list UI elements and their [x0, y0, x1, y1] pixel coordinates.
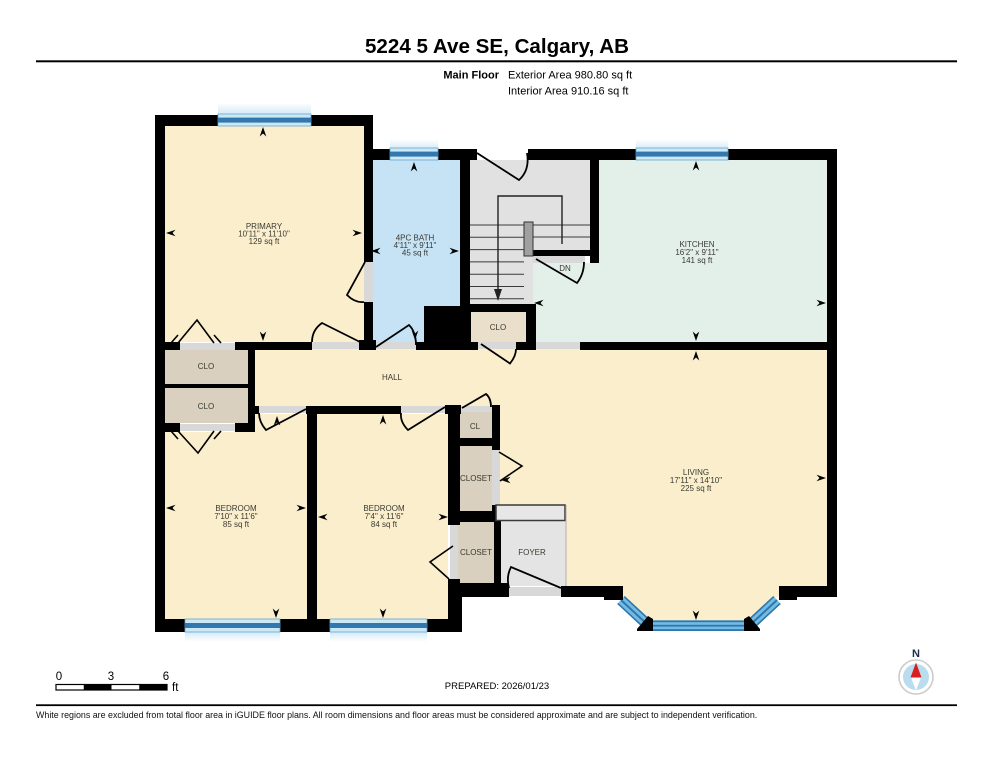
svg-text:CLO: CLO	[198, 402, 214, 411]
svg-text:CL: CL	[470, 422, 481, 431]
svg-text:3: 3	[108, 671, 114, 683]
svg-text:Main Floor: Main Floor	[443, 70, 499, 82]
svg-text:CLOSET: CLOSET	[460, 474, 492, 483]
svg-text:HALL: HALL	[382, 373, 403, 382]
svg-text:N: N	[912, 648, 920, 660]
svg-text:DN: DN	[559, 264, 571, 273]
svg-text:84 sq ft: 84 sq ft	[371, 520, 398, 529]
svg-text:Interior Area 910.16 sq ft: Interior Area 910.16 sq ft	[508, 86, 628, 98]
svg-text:CLO: CLO	[490, 323, 506, 332]
svg-text:FOYER: FOYER	[518, 548, 546, 557]
svg-text:Exterior Area 980.80 sq ft: Exterior Area 980.80 sq ft	[508, 70, 632, 82]
svg-text:141 sq ft: 141 sq ft	[682, 256, 713, 265]
svg-text:0: 0	[56, 671, 62, 683]
svg-text:CLOSET: CLOSET	[460, 548, 492, 557]
svg-text:45 sq ft: 45 sq ft	[402, 249, 429, 258]
svg-text:CLO: CLO	[198, 362, 214, 371]
svg-text:225 sq ft: 225 sq ft	[681, 484, 712, 493]
svg-text:129 sq ft: 129 sq ft	[249, 237, 280, 246]
svg-text:85 sq ft: 85 sq ft	[223, 520, 250, 529]
svg-text:PREPARED: 2026/01/23: PREPARED: 2026/01/23	[445, 681, 549, 692]
svg-text:White regions are excluded fro: White regions are excluded from total fl…	[36, 710, 757, 720]
svg-text:ft: ft	[172, 682, 179, 694]
svg-text:5224 5 Ave SE, Calgary, AB: 5224 5 Ave SE, Calgary, AB	[365, 35, 629, 58]
svg-text:6: 6	[163, 671, 169, 683]
